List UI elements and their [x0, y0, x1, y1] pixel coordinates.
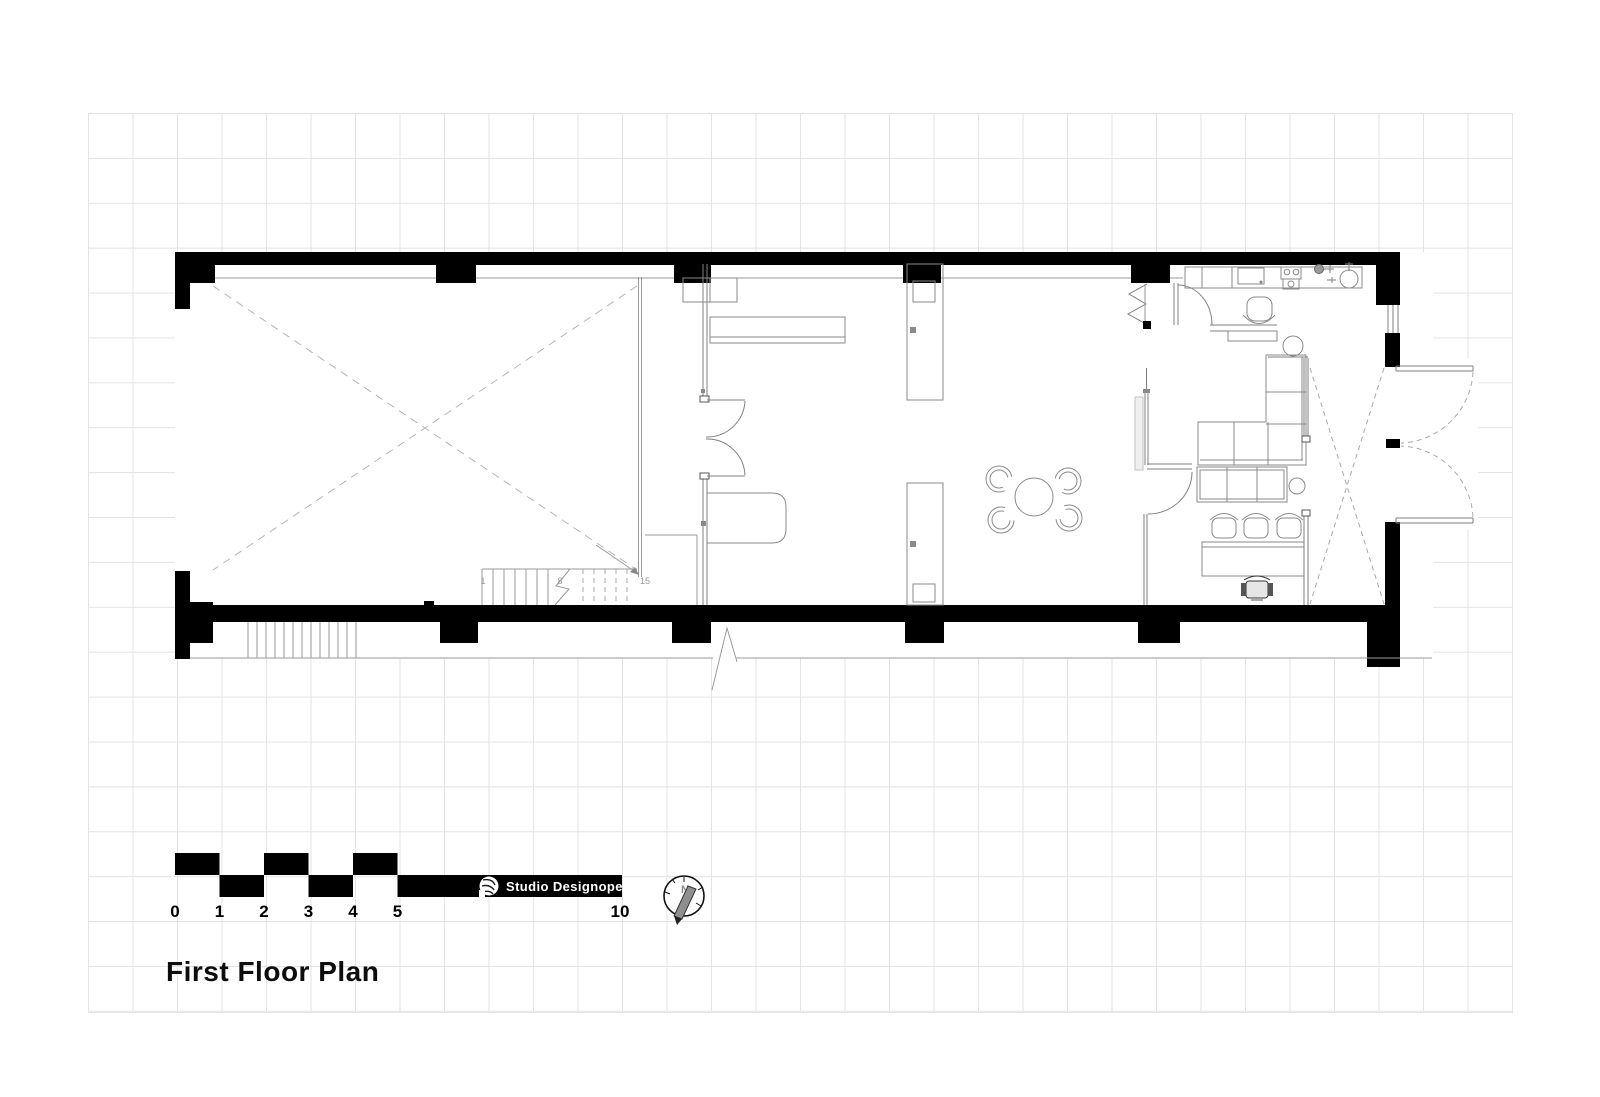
north-arrow: N	[664, 876, 704, 925]
page: 1 8 15	[0, 0, 1600, 1097]
scale-number-0: 0	[170, 902, 179, 921]
scale-bar: Studio Designopedia 0 1 2 3 4 5 10	[170, 853, 643, 921]
page-title: First Floor Plan	[166, 956, 379, 988]
stair-label-first: 1	[480, 576, 485, 586]
stair-label-middle: 8	[557, 576, 562, 586]
plan-background	[175, 252, 1478, 659]
scale-number-3: 3	[304, 902, 313, 921]
scale-number-2: 2	[259, 902, 268, 921]
scale-number-1: 1	[215, 902, 224, 921]
scale-number-5: 5	[393, 902, 402, 921]
floor-plan-drawing: 1 8 15	[0, 0, 1600, 1097]
studio-name: Studio Designopedia	[506, 879, 643, 894]
stair-label-last: 15	[640, 576, 650, 586]
scale-number-10: 10	[611, 902, 630, 921]
scale-number-4: 4	[348, 902, 358, 921]
